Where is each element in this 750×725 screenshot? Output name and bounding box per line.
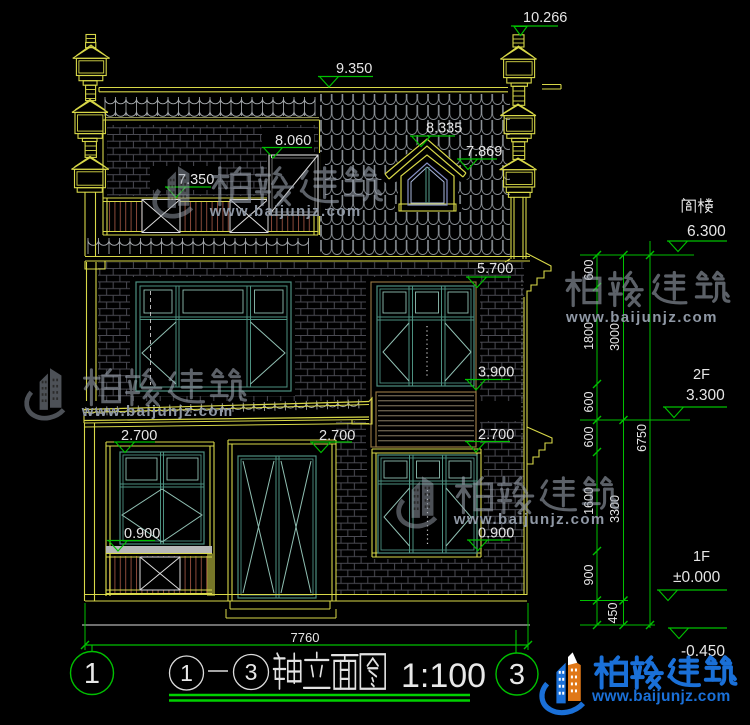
svg-text:3: 3 [509, 659, 525, 691]
svg-text:6750: 6750 [635, 424, 649, 452]
svg-text:9.350: 9.350 [336, 61, 372, 77]
svg-text:2F: 2F [693, 367, 710, 383]
svg-text:600: 600 [582, 427, 596, 448]
svg-text:600: 600 [582, 392, 596, 413]
svg-text:8.060: 8.060 [275, 133, 311, 149]
svg-text:1: 1 [84, 658, 100, 690]
svg-text:3.300: 3.300 [686, 387, 725, 404]
svg-text:3.900: 3.900 [478, 365, 514, 381]
svg-text:www.baijunjz.com: www.baijunjz.com [453, 511, 606, 528]
svg-text:10.266: 10.266 [523, 10, 567, 26]
svg-text:www.baijunjz.com: www.baijunjz.com [591, 688, 731, 705]
svg-text:7.869: 7.869 [466, 144, 502, 160]
svg-text:1:100: 1:100 [401, 657, 486, 695]
svg-text:1: 1 [180, 660, 193, 686]
svg-text:3: 3 [245, 659, 258, 685]
svg-text:1F: 1F [693, 549, 710, 565]
svg-text:8.335: 8.335 [426, 121, 462, 137]
svg-text:±0.000: ±0.000 [673, 569, 721, 586]
svg-text:www.baijunjz.com: www.baijunjz.com [81, 403, 234, 420]
svg-text:900: 900 [582, 565, 596, 586]
svg-text:5.700: 5.700 [477, 261, 513, 277]
svg-text:1800: 1800 [582, 322, 596, 350]
svg-text:7760: 7760 [291, 630, 320, 645]
svg-text:6.300: 6.300 [687, 223, 726, 240]
svg-text:0.900: 0.900 [124, 526, 160, 542]
svg-text:3000: 3000 [608, 323, 622, 351]
svg-text:www.baijunjz.com: www.baijunjz.com [209, 203, 362, 220]
svg-text:450: 450 [606, 603, 620, 624]
svg-text:2.700: 2.700 [478, 427, 514, 443]
svg-text:www.baijunjz.com: www.baijunjz.com [565, 309, 718, 326]
